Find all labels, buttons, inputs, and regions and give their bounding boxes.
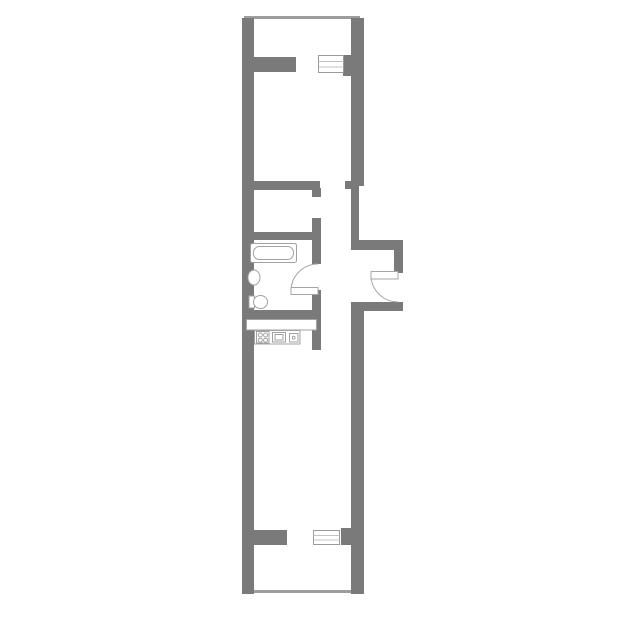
- wall-bedroom-divider: [242, 181, 320, 190]
- toilet-icon: [249, 296, 268, 309]
- wall-entrance-right: [394, 250, 403, 273]
- wall-bathroom-top: [242, 232, 321, 240]
- wall-bathroom-right-upper: [312, 218, 321, 264]
- window-top-icon: [319, 56, 344, 73]
- balcony-top-parapet: [244, 16, 360, 19]
- wall-right-doorway-stub: [345, 181, 352, 189]
- floorplan-page: [0, 0, 640, 634]
- wall-window-band-top-left: [242, 57, 296, 72]
- entrance-door-icon: [371, 272, 398, 303]
- kitchen-sink-icon: [273, 333, 286, 343]
- wall-right-upper: [351, 18, 364, 186]
- stove-icon: [257, 332, 270, 344]
- wall-entrance-bottom: [351, 302, 403, 311]
- wall-window-band-top-right: [343, 55, 364, 76]
- bathroom-door-icon: [291, 264, 318, 295]
- floorplan-canvas: [0, 0, 640, 634]
- wall-right-lower: [351, 311, 364, 594]
- kitchen-counter-icon: [255, 331, 301, 345]
- wall-window-band-bottom-right: [341, 528, 363, 545]
- small-appliance-icon: [290, 334, 299, 343]
- window-bottom-icon: [314, 531, 340, 545]
- wall-bathroom-bottom: [242, 310, 321, 320]
- balcony-bottom-parapet: [244, 590, 360, 593]
- wall-entrance-top: [351, 240, 403, 250]
- wall-window-band-bottom-left: [242, 530, 287, 545]
- washbasin-icon: [248, 270, 260, 285]
- wall-bedroom-divider-stub: [312, 188, 321, 197]
- wall-right-hall: [351, 186, 359, 240]
- bathtub-icon: [251, 244, 297, 263]
- kitchen-counter-strip: [247, 320, 317, 331]
